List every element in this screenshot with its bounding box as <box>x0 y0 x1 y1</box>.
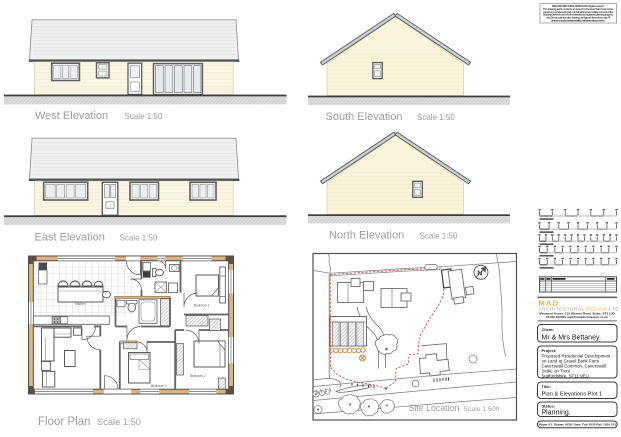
svg-text:North Elevation: North Elevation <box>329 229 404 241</box>
svg-text:Scale 1:50: Scale 1:50 <box>120 233 158 242</box>
svg-text:Bedroom 3: Bedroom 3 <box>151 384 167 388</box>
svg-text:Status:: Status: <box>542 404 556 409</box>
svg-text:Title:: Title: <box>542 384 551 389</box>
svg-text:Paper A1. Drawn: ADB. Date: Fe: Paper A1. Drawn: ADB. Date: Feb 2020 Ref… <box>539 423 616 427</box>
svg-text:South Elevation: South Elevation <box>326 111 403 123</box>
svg-text:Staffordshire. ST11 9EU.: Staffordshire. ST11 9EU. <box>542 373 590 378</box>
svg-text:Client:: Client: <box>542 327 554 332</box>
svg-text:Plan & Elevations Plot 1: Plan & Elevations Plot 1 <box>542 391 603 397</box>
svg-text:Kitchen: Kitchen <box>75 302 86 306</box>
svg-text:Floor Plan: Floor Plan <box>38 416 90 428</box>
svg-text:Site Location: Site Location <box>409 403 460 413</box>
svg-text:Bedroom 2: Bedroom 2 <box>190 374 206 378</box>
svg-text:Planning.: Planning. <box>542 410 571 417</box>
svg-text:Scale 1:50: Scale 1:50 <box>97 417 141 427</box>
svg-text:MAD: MAD <box>539 298 560 307</box>
svg-text:Scale 1:500: Scale 1:500 <box>464 406 500 413</box>
svg-text:Mr & Mrs Bettaney.: Mr & Mrs Bettaney. <box>542 334 601 341</box>
svg-text:01782 000000 mail@madarchdes: 01782 000000 mail@madarchdesign.co.uk <box>546 315 608 319</box>
svg-text:East Elevation: East Elevation <box>35 231 105 243</box>
svg-text:N: N <box>477 271 482 278</box>
svg-text:Scale 1:50: Scale 1:50 <box>125 112 163 121</box>
svg-text:Scale 1:50: Scale 1:50 <box>417 113 455 122</box>
svg-text:Bedroom 1: Bedroom 1 <box>194 304 210 308</box>
svg-text:West Elevation: West Elevation <box>35 110 108 122</box>
svg-text:Project:: Project: <box>542 348 557 353</box>
svg-text:dimensions must be checked and: dimensions must be checked and verified … <box>551 19 605 23</box>
svg-text:Scale 1:50: Scale 1:50 <box>420 231 458 240</box>
